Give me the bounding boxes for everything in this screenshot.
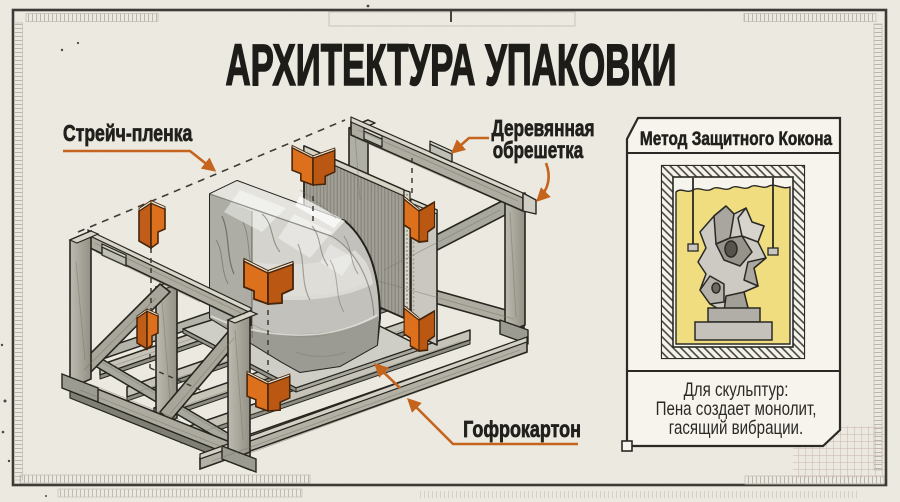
svg-text:Стрейч-пленка: Стрейч-пленка <box>63 121 193 147</box>
svg-text:Метод Защитного Кокона: Метод Защитного Кокона <box>640 127 832 149</box>
svg-text:Гофрокартон: Гофрокартон <box>463 417 581 443</box>
svg-text:гасящий вибрации.: гасящий вибрации. <box>669 416 803 438</box>
svg-text:обрешетка: обрешетка <box>493 139 584 164</box>
svg-text:АРХИТЕКТУРА УПАКОВКИ: АРХИТЕКТУРА УПАКОВКИ <box>225 34 676 98</box>
